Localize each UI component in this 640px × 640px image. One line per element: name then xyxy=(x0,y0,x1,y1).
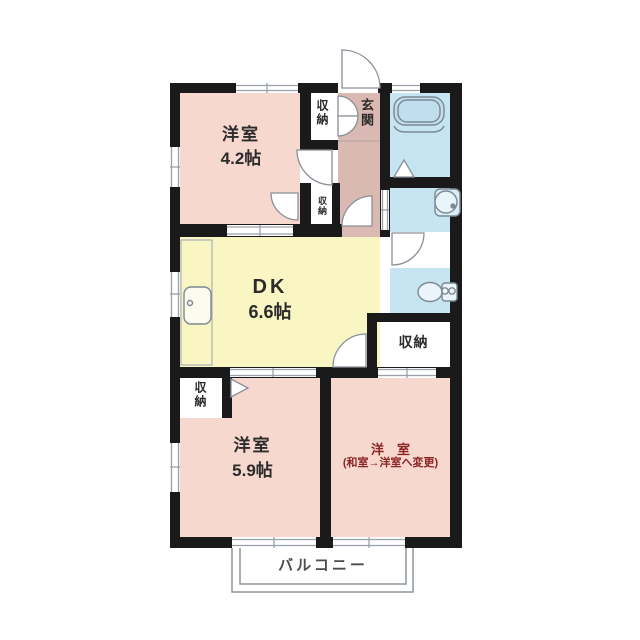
window-left-bedroom-left xyxy=(170,443,180,492)
toilet-icon xyxy=(418,283,457,302)
floor-plan-page: 洋室 4.2帖 収納 玄関 収納 DK 6.6帖 収納 収納 洋室 5.9帖 洋… xyxy=(0,0,640,640)
sliding-door-bedroomtop-dk xyxy=(227,225,293,236)
dk-size: 6.6帖 xyxy=(190,303,350,321)
window-balcony-left xyxy=(232,537,316,548)
closet-small-label: 収納 xyxy=(317,196,326,216)
entrance-label: 玄関 xyxy=(360,98,373,128)
wall-segment xyxy=(390,177,450,188)
closet-bottom-label: 収納 xyxy=(194,381,206,409)
wall-segment xyxy=(311,140,338,150)
wall-segment xyxy=(405,537,462,548)
closet-top-label: 収納 xyxy=(316,99,328,127)
wall-segment xyxy=(300,183,311,224)
window-balcony-right xyxy=(333,537,405,548)
bedroom-right-note: (和室→洋室へ変更) xyxy=(326,458,455,469)
wall-segment xyxy=(170,83,180,147)
wall-segment xyxy=(367,313,450,322)
sliding-door-dk-bedroomleft xyxy=(230,368,316,377)
sliding-door-hall-washroom xyxy=(381,190,389,230)
entrance-door-arc xyxy=(342,50,380,88)
window-left-bedroom-top xyxy=(170,147,180,187)
dk-label: DK xyxy=(190,277,350,297)
wall-segment xyxy=(298,83,338,93)
window-top-bedroom xyxy=(236,83,298,93)
wall-segment xyxy=(316,537,333,548)
bedroom-right-label: 洋 室 xyxy=(331,443,450,456)
wall-segment xyxy=(170,317,180,443)
wall-segment xyxy=(450,83,462,548)
bedroom-top-label: 洋室 xyxy=(180,126,302,143)
wall-segment xyxy=(332,183,340,224)
wall-segment xyxy=(170,537,232,548)
window-left-dk xyxy=(170,272,180,317)
wall-segment xyxy=(170,187,180,272)
sliding-door-closet-right xyxy=(378,368,436,378)
balcony-label: バルコニー xyxy=(240,558,406,573)
bedroom-left-label: 洋室 xyxy=(185,437,320,454)
bedroom-top-door-arc xyxy=(297,150,332,185)
washbasin-icon xyxy=(435,189,460,216)
bedroom-top-size: 4.2帖 xyxy=(180,150,302,167)
bedroom-left-size: 5.9帖 xyxy=(185,462,320,479)
window-top-bathroom xyxy=(392,84,420,92)
closet-right-label: 収納 xyxy=(377,335,450,349)
